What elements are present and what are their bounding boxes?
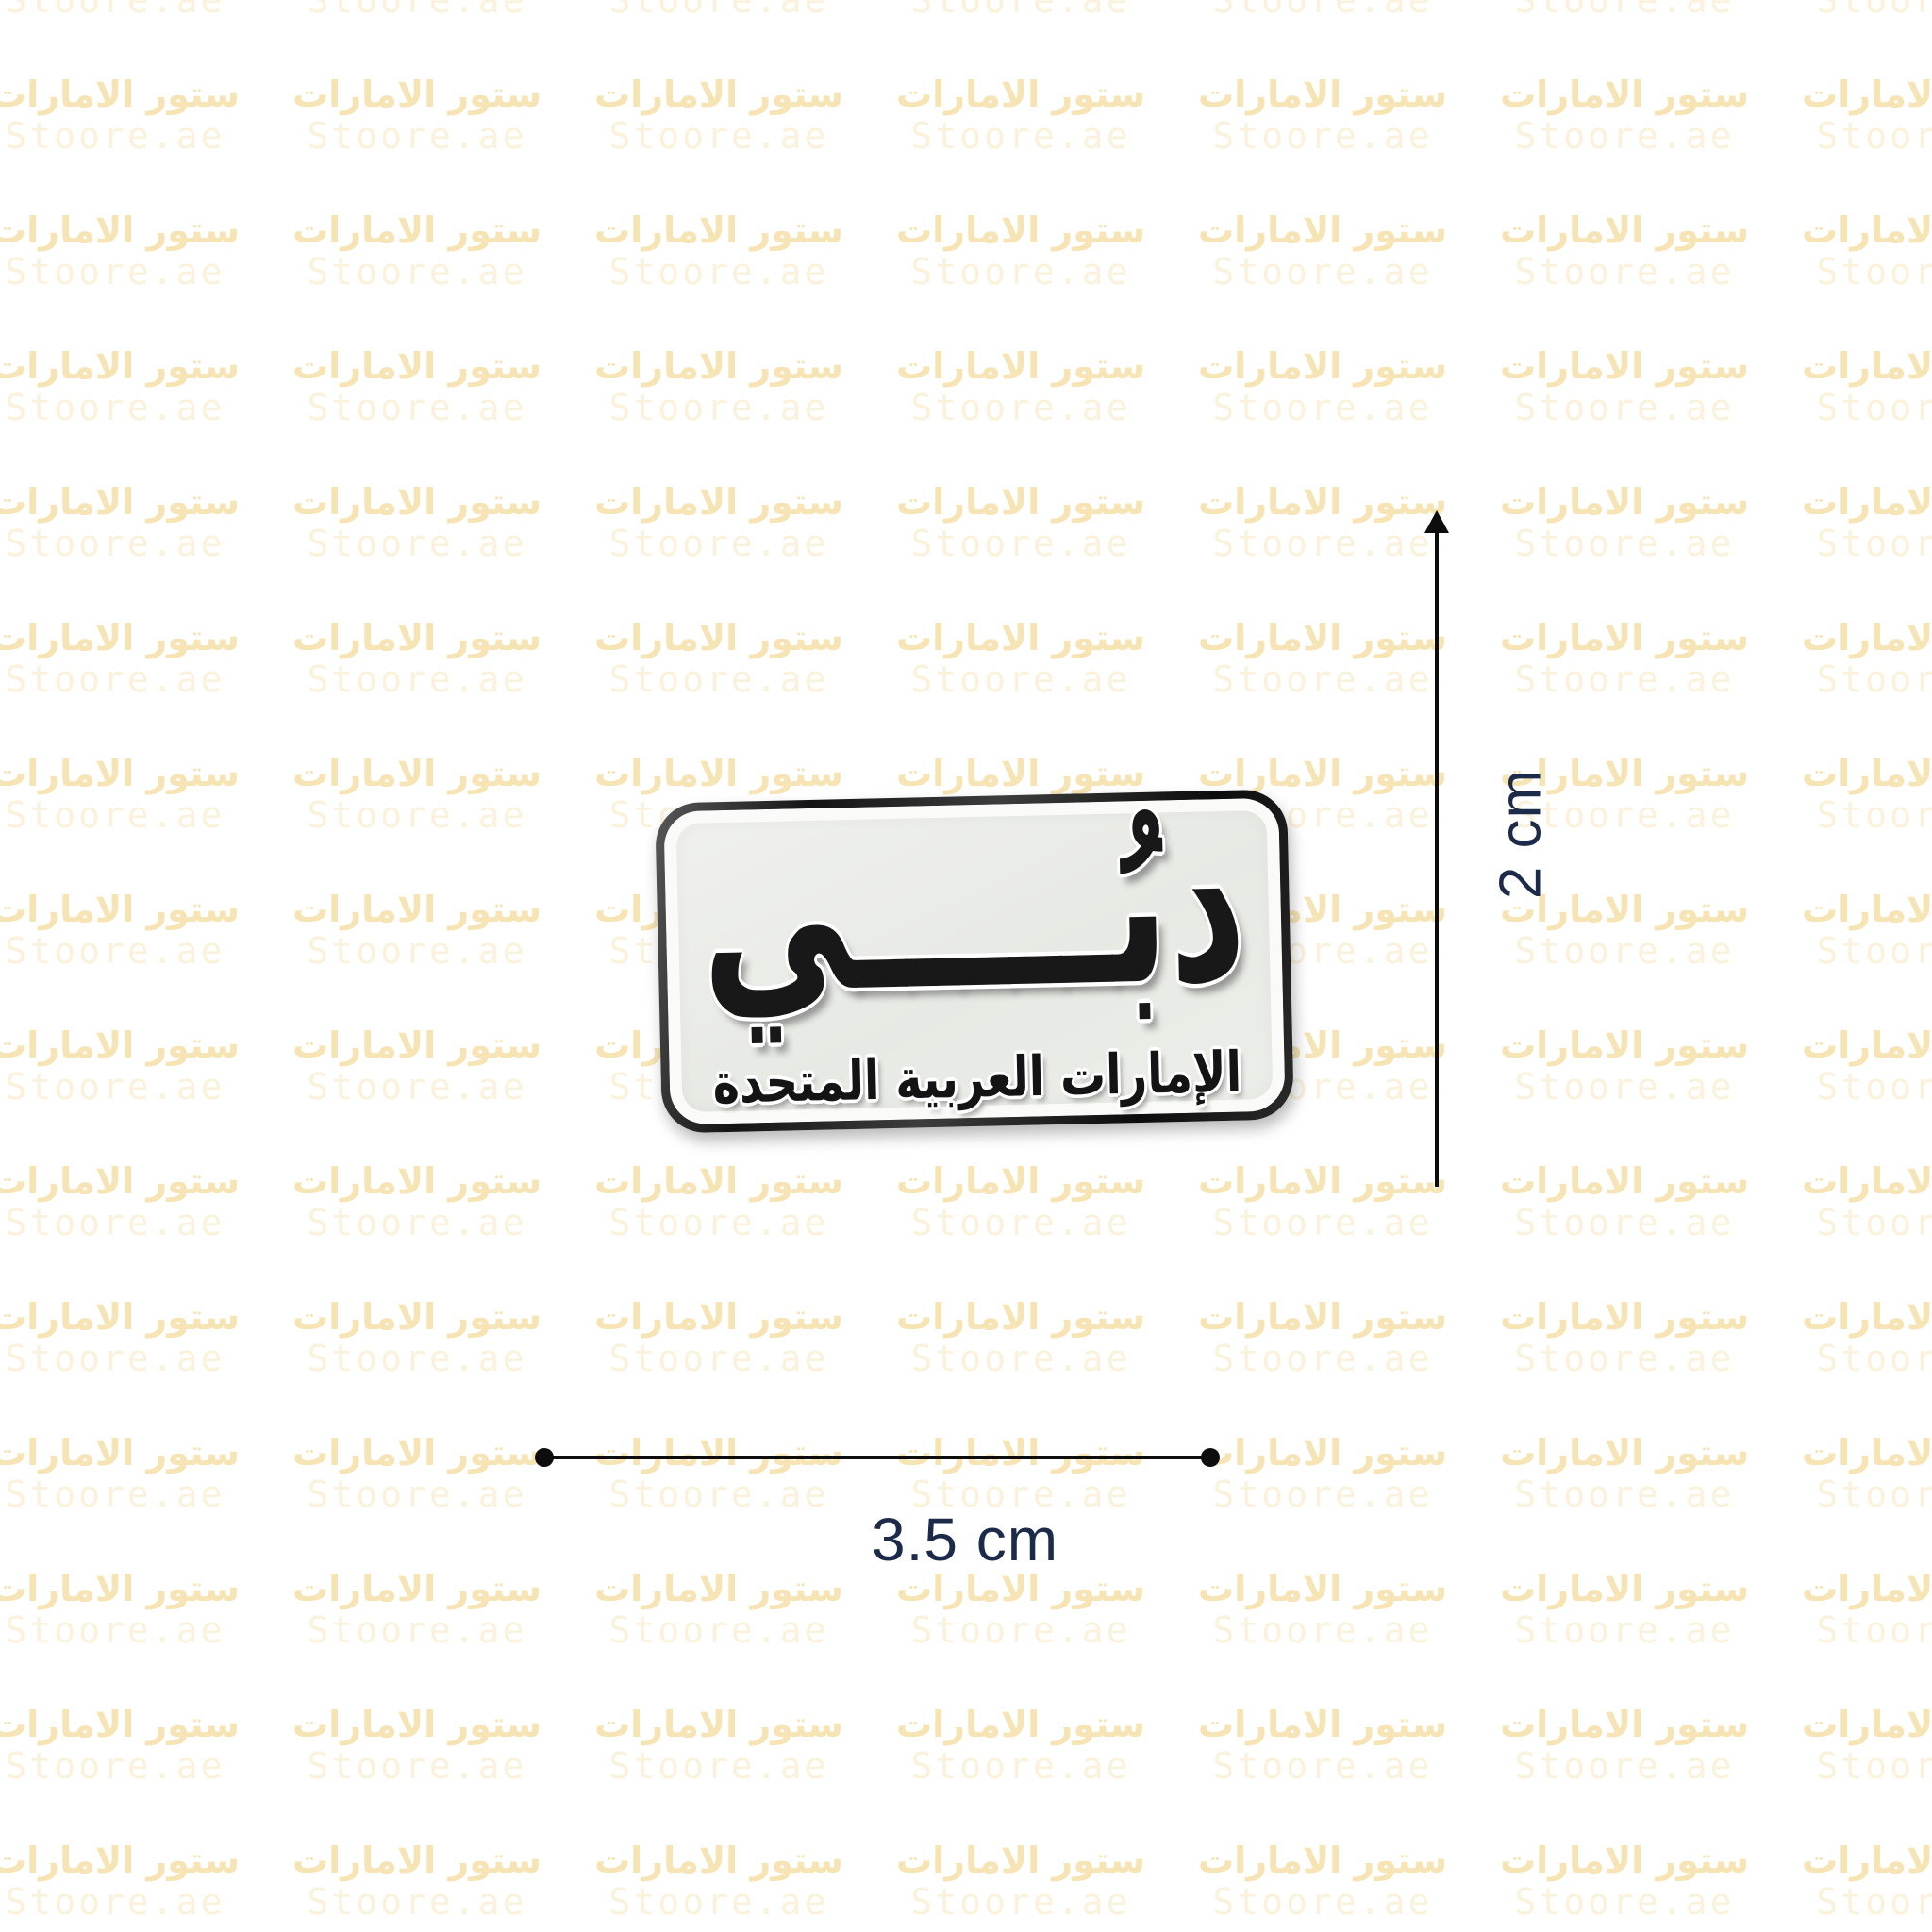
watermark-arabic-text: ستور الامارات: [292, 73, 541, 116]
watermark-item: ستور الاماراتStoore.ae: [1500, 73, 1749, 156]
watermark-arabic-text: ستور الامارات: [292, 208, 541, 252]
watermark-arabic-text: ستور الامارات: [594, 1295, 843, 1339]
watermark-arabic-text: ستور الامارات: [292, 1703, 541, 1746]
watermark-latin-text: Stoore.ae: [1500, 388, 1749, 427]
watermark-arabic-text: ستور الامارات: [1802, 1295, 1932, 1339]
watermark-arabic-text: ستور الامارات: [1500, 208, 1749, 252]
width-measure-right-dot-icon: [1201, 1448, 1220, 1467]
watermark-latin-text: Stoore.ae: [292, 116, 541, 156]
height-arrow-line: [1435, 528, 1439, 1187]
watermark-latin-text: Stoore.ae: [896, 0, 1145, 20]
watermark-latin-text: Stoore.ae: [0, 1067, 240, 1107]
watermark-item: ستور الاماراتStoore.ae: [1802, 1703, 1932, 1786]
watermark-latin-text: Stoore.ae: [896, 252, 1145, 291]
watermark-item: ستور الاماراتStoore.ae: [896, 1703, 1145, 1786]
watermark-arabic-text: ستور الامارات: [1500, 1839, 1749, 1882]
watermark-item: ستور الاماراتStoore.ae: [594, 616, 843, 699]
pin-face: دبُـــــي الإمارات العربية المتحدة: [663, 798, 1285, 1125]
watermark-arabic-text: ستور الامارات: [292, 1567, 541, 1610]
watermark-item: ستور الاماراتStoore.ae: [1802, 480, 1932, 563]
watermark-item: ستور الاماراتStoore.ae: [292, 1703, 541, 1786]
watermark-latin-text: Stoore.ae: [0, 1882, 240, 1922]
watermark-item: ستور الاماراتStoore.ae: [1198, 1431, 1447, 1514]
watermark-latin-text: Stoore.ae: [0, 1610, 240, 1650]
watermark-arabic-text: ستور الامارات: [1500, 1703, 1749, 1746]
watermark-item: ستور الاماراتStoore.ae: [1500, 1159, 1749, 1242]
watermark-latin-text: Stoore.ae: [594, 1610, 843, 1650]
product-image-canvas: ستور الاماراتStoore.aeستور الاماراتStoor…: [0, 0, 1932, 1932]
watermark-latin-text: Stoore.ae: [0, 1203, 240, 1242]
watermark-item: ستور الاماراتStoore.ae: [1500, 1024, 1749, 1107]
watermark-latin-text: Stoore.ae: [896, 524, 1145, 563]
watermark-latin-text: Stoore.ae: [1500, 252, 1749, 291]
pin-city-text: دبُـــــي: [698, 798, 1249, 1042]
watermark-arabic-text: ستور الامارات: [0, 752, 240, 795]
pin-country-text: الإمارات العربية المتحدة: [712, 1040, 1242, 1116]
watermark-latin-text: Stoore.ae: [1198, 1610, 1447, 1650]
watermark-item: ستور الاماراتStoore.ae: [0, 208, 240, 291]
watermark-arabic-text: ستور الامارات: [594, 1839, 843, 1882]
watermark-arabic-text: ستور الامارات: [594, 208, 843, 252]
watermark-item: ستور الاماراتStoore.ae: [896, 0, 1145, 20]
watermark-arabic-text: ستور الامارات: [594, 616, 843, 659]
watermark-latin-text: Stoore.ae: [1500, 1474, 1749, 1514]
watermark-latin-text: Stoore.ae: [1198, 1474, 1447, 1514]
watermark-arabic-text: ستور الامارات: [594, 1431, 843, 1474]
width-dimension-label: 3.5 cm: [872, 1505, 1058, 1574]
watermark-item: ستور الاماراتStoore.ae: [292, 208, 541, 291]
watermark-latin-text: Stoore.ae: [1802, 1474, 1932, 1514]
watermark-item: ستور الاماراتStoore.ae: [1500, 208, 1749, 291]
watermark-arabic-text: ستور الامارات: [1500, 1567, 1749, 1610]
watermark-item: ستور الاماراتStoore.ae: [1198, 1567, 1447, 1650]
watermark-latin-text: Stoore.ae: [1802, 1610, 1932, 1650]
watermark-arabic-text: ستور الامارات: [1500, 1295, 1749, 1339]
watermark-item: ستور الاماراتStoore.ae: [896, 1159, 1145, 1242]
watermark-latin-text: Stoore.ae: [1802, 1203, 1932, 1242]
watermark-item: ستور الاماراتStoore.ae: [292, 1024, 541, 1107]
watermark-arabic-text: ستور الامارات: [1198, 480, 1447, 524]
watermark-latin-text: Stoore.ae: [594, 1339, 843, 1378]
watermark-item: ستور الاماراتStoore.ae: [1198, 1159, 1447, 1242]
width-measure-left-dot-icon: [535, 1448, 554, 1467]
watermark-item: ستور الاماراتStoore.ae: [1802, 208, 1932, 291]
watermark-latin-text: Stoore.ae: [594, 524, 843, 563]
watermark-arabic-text: ستور الامارات: [0, 73, 240, 116]
watermark-item: ستور الاماراتStoore.ae: [1198, 1839, 1447, 1922]
watermark-latin-text: Stoore.ae: [1500, 1746, 1749, 1786]
watermark-arabic-text: ستور الامارات: [594, 752, 843, 795]
watermark-item: ستور الاماراتStoore.ae: [0, 1024, 240, 1107]
watermark-latin-text: Stoore.ae: [0, 1339, 240, 1378]
watermark-item: ستور الاماراتStoore.ae: [1802, 616, 1932, 699]
watermark-latin-text: Stoore.ae: [594, 1203, 843, 1242]
watermark-item: ستور الاماراتStoore.ae: [896, 480, 1145, 563]
watermark-latin-text: Stoore.ae: [594, 116, 843, 156]
watermark-latin-text: Stoore.ae: [1198, 0, 1447, 20]
watermark-arabic-text: ستور الامارات: [896, 73, 1145, 116]
watermark-arabic-text: ستور الامارات: [0, 1159, 240, 1203]
watermark-item: ستور الاماراتStoore.ae: [1802, 1839, 1932, 1922]
watermark-latin-text: Stoore.ae: [1500, 0, 1749, 20]
watermark-latin-text: Stoore.ae: [292, 1203, 541, 1242]
watermark-item: ستور الاماراتStoore.ae: [896, 1295, 1145, 1378]
watermark-arabic-text: ستور الامارات: [1802, 1431, 1932, 1474]
watermark-latin-text: Stoore.ae: [896, 1610, 1145, 1650]
pin-city-text-wrap: دبُـــــي: [663, 804, 1283, 1014]
watermark-latin-text: Stoore.ae: [1802, 795, 1932, 835]
watermark-arabic-text: ستور الامارات: [0, 1024, 240, 1067]
watermark-arabic-text: ستور الامارات: [594, 73, 843, 116]
watermark-item: ستور الاماراتStoore.ae: [896, 616, 1145, 699]
watermark-latin-text: Stoore.ae: [1500, 1882, 1749, 1922]
watermark-item: ستور الاماراتStoore.ae: [1500, 1431, 1749, 1514]
watermark-arabic-text: ستور الامارات: [1802, 1024, 1932, 1067]
watermark-latin-text: Stoore.ae: [1198, 1203, 1447, 1242]
watermark-latin-text: Stoore.ae: [1500, 931, 1749, 971]
watermark-item: ستور الاماراتStoore.ae: [0, 888, 240, 971]
watermark-item: ستور الاماراتStoore.ae: [0, 1431, 240, 1514]
watermark-arabic-text: ستور الامارات: [594, 1159, 843, 1203]
watermark-arabic-text: ستور الامارات: [1198, 752, 1447, 795]
watermark-item: ستور الاماراتStoore.ae: [594, 0, 843, 20]
watermark-item: ستور الاماراتStoore.ae: [0, 0, 240, 20]
watermark-latin-text: Stoore.ae: [594, 388, 843, 427]
watermark-arabic-text: ستور الامارات: [1500, 616, 1749, 659]
watermark-item: ستور الاماراتStoore.ae: [896, 1431, 1145, 1514]
watermark-item: ستور الاماراتStoore.ae: [1802, 1024, 1932, 1107]
watermark-arabic-text: ستور الامارات: [1500, 73, 1749, 116]
watermark-latin-text: Stoore.ae: [0, 252, 240, 291]
watermark-item: ستور الاماراتStoore.ae: [0, 1703, 240, 1786]
watermark-item: ستور الاماراتStoore.ae: [292, 344, 541, 427]
watermark-item: ستور الاماراتStoore.ae: [292, 1839, 541, 1922]
watermark-item: ستور الاماراتStoore.ae: [0, 1159, 240, 1242]
watermark-arabic-text: ستور الامارات: [0, 344, 240, 388]
watermark-arabic-text: ستور الامارات: [594, 1703, 843, 1746]
watermark-latin-text: Stoore.ae: [1500, 1339, 1749, 1378]
watermark-latin-text: Stoore.ae: [594, 1474, 843, 1514]
watermark-latin-text: Stoore.ae: [896, 116, 1145, 156]
watermark-latin-text: Stoore.ae: [1500, 116, 1749, 156]
watermark-arabic-text: ستور الامارات: [1198, 1431, 1447, 1474]
watermark-item: ستور الاماراتStoore.ae: [1802, 888, 1932, 971]
watermark-latin-text: Stoore.ae: [594, 1882, 843, 1922]
watermark-item: ستور الاماراتStoore.ae: [0, 344, 240, 427]
watermark-latin-text: Stoore.ae: [292, 795, 541, 835]
watermark-latin-text: Stoore.ae: [1802, 1067, 1932, 1107]
watermark-item: ستور الاماراتStoore.ae: [1198, 616, 1447, 699]
watermark-item: ستور الاماراتStoore.ae: [896, 1839, 1145, 1922]
watermark-latin-text: Stoore.ae: [1802, 116, 1932, 156]
watermark-arabic-text: ستور الامارات: [1802, 616, 1932, 659]
watermark-arabic-text: ستور الامارات: [1198, 73, 1447, 116]
watermark-item: ستور الاماراتStoore.ae: [0, 1839, 240, 1922]
watermark-item: ستور الاماراتStoore.ae: [594, 208, 843, 291]
watermark-item: ستور الاماراتStoore.ae: [1802, 344, 1932, 427]
watermark-item: ستور الاماراتStoore.ae: [0, 752, 240, 835]
watermark-latin-text: Stoore.ae: [1198, 1746, 1447, 1786]
watermark-arabic-text: ستور الامارات: [594, 1567, 843, 1610]
watermark-latin-text: Stoore.ae: [292, 1474, 541, 1514]
watermark-latin-text: Stoore.ae: [896, 1882, 1145, 1922]
watermark-arabic-text: ستور الامارات: [292, 1159, 541, 1203]
watermark-latin-text: Stoore.ae: [1802, 524, 1932, 563]
watermark-arabic-text: ستور الامارات: [0, 1703, 240, 1746]
watermark-item: ستور الاماراتStoore.ae: [1802, 1431, 1932, 1514]
watermark-arabic-text: ستور الامارات: [1198, 1295, 1447, 1339]
watermark-item: ستور الاماراتStoore.ae: [594, 1295, 843, 1378]
watermark-arabic-text: ستور الامارات: [896, 480, 1145, 524]
watermark-item: ستور الاماراتStoore.ae: [0, 1567, 240, 1650]
watermark-latin-text: Stoore.ae: [292, 1339, 541, 1378]
watermark-latin-text: Stoore.ae: [896, 1339, 1145, 1378]
watermark-latin-text: Stoore.ae: [896, 388, 1145, 427]
watermark-arabic-text: ستور الامارات: [0, 480, 240, 524]
watermark-latin-text: Stoore.ae: [292, 1067, 541, 1107]
watermark-item: ستور الاماراتStoore.ae: [594, 73, 843, 156]
watermark-latin-text: Stoore.ae: [0, 1746, 240, 1786]
watermark-arabic-text: ستور الامارات: [1198, 1839, 1447, 1882]
watermark-item: ستور الاماراتStoore.ae: [1500, 616, 1749, 699]
watermark-arabic-text: ستور الامارات: [1198, 208, 1447, 252]
watermark-arabic-text: ستور الامارات: [292, 1431, 541, 1474]
watermark-arabic-text: ستور الامارات: [1802, 1159, 1932, 1203]
watermark-latin-text: Stoore.ae: [1802, 659, 1932, 699]
watermark-arabic-text: ستور الامارات: [896, 1839, 1145, 1882]
watermark-latin-text: Stoore.ae: [1198, 252, 1447, 291]
watermark-item: ستور الاماراتStoore.ae: [292, 888, 541, 971]
watermark-latin-text: Stoore.ae: [0, 388, 240, 427]
watermark-item: ستور الاماراتStoore.ae: [594, 480, 843, 563]
watermark-item: ستور الاماراتStoore.ae: [1500, 1567, 1749, 1650]
watermark-item: ستور الاماراتStoore.ae: [1500, 480, 1749, 563]
watermark-item: ستور الاماراتStoore.ae: [1500, 0, 1749, 20]
watermark-arabic-text: ستور الامارات: [0, 1567, 240, 1610]
watermark-arabic-text: ستور الامارات: [1500, 1024, 1749, 1067]
watermark-arabic-text: ستور الامارات: [896, 1295, 1145, 1339]
watermark-latin-text: Stoore.ae: [1802, 252, 1932, 291]
watermark-latin-text: Stoore.ae: [0, 0, 240, 20]
watermark-arabic-text: ستور الامارات: [1198, 616, 1447, 659]
watermark-item: ستور الاماراتStoore.ae: [0, 73, 240, 156]
watermark-arabic-text: ستور الامارات: [0, 888, 240, 931]
watermark-item: ستور الاماراتStoore.ae: [292, 1431, 541, 1514]
watermark-latin-text: Stoore.ae: [0, 524, 240, 563]
watermark-latin-text: Stoore.ae: [1802, 931, 1932, 971]
watermark-arabic-text: ستور الامارات: [292, 616, 541, 659]
watermark-latin-text: Stoore.ae: [1198, 524, 1447, 563]
watermark-arabic-text: ستور الامارات: [0, 208, 240, 252]
watermark-latin-text: Stoore.ae: [1198, 659, 1447, 699]
watermark-item: ستور الاماراتStoore.ae: [896, 344, 1145, 427]
watermark-arabic-text: ستور الامارات: [896, 1431, 1145, 1474]
watermark-arabic-text: ستور الامارات: [0, 1295, 240, 1339]
watermark-item: ستور الاماراتStoore.ae: [1500, 1703, 1749, 1786]
watermark-item: ستور الاماراتStoore.ae: [0, 480, 240, 563]
watermark-latin-text: Stoore.ae: [594, 252, 843, 291]
watermark-item: ستور الاماراتStoore.ae: [594, 1159, 843, 1242]
watermark-item: ستور الاماراتStoore.ae: [1802, 1295, 1932, 1378]
watermark-arabic-text: ستور الامارات: [292, 1839, 541, 1882]
watermark-item: ستور الاماراتStoore.ae: [0, 1295, 240, 1378]
watermark-item: ستور الاماراتStoore.ae: [594, 1839, 843, 1922]
watermark-arabic-text: ستور الامارات: [1802, 1567, 1932, 1610]
watermark-latin-text: Stoore.ae: [292, 659, 541, 699]
height-dimension-label: 2 cm: [1488, 769, 1555, 899]
watermark-item: ستور الاماراتStoore.ae: [896, 208, 1145, 291]
watermark-arabic-text: ستور الامارات: [896, 616, 1145, 659]
watermark-latin-text: Stoore.ae: [292, 1610, 541, 1650]
watermark-latin-text: Stoore.ae: [0, 659, 240, 699]
watermark-latin-text: Stoore.ae: [1802, 388, 1932, 427]
watermark-arabic-text: ستور الامارات: [1802, 752, 1932, 795]
watermark-item: ستور الاماراتStoore.ae: [292, 1295, 541, 1378]
watermark-item: ستور الاماراتStoore.ae: [1500, 1839, 1749, 1922]
pin-country-text-wrap: الإمارات العربية المتحدة: [669, 1045, 1285, 1112]
watermark-arabic-text: ستور الامارات: [0, 1431, 240, 1474]
watermark-item: ستور الاماراتStoore.ae: [594, 344, 843, 427]
dubai-plate-pin: دبُـــــي الإمارات العربية المتحدة: [655, 789, 1294, 1133]
watermark-latin-text: Stoore.ae: [0, 116, 240, 156]
watermark-latin-text: Stoore.ae: [0, 795, 240, 835]
width-measure-line: [543, 1456, 1210, 1459]
watermark-arabic-text: ستور الامارات: [1802, 480, 1932, 524]
watermark-latin-text: Stoore.ae: [292, 252, 541, 291]
watermark-arabic-text: ستور الامارات: [896, 752, 1145, 795]
watermark-item: ستور الاماراتStoore.ae: [896, 1567, 1145, 1650]
watermark-item: ستور الاماراتStoore.ae: [594, 1431, 843, 1514]
watermark-arabic-text: ستور الامارات: [1500, 1431, 1749, 1474]
watermark-arabic-text: ستور الامارات: [292, 752, 541, 795]
watermark-latin-text: Stoore.ae: [594, 0, 843, 20]
watermark-latin-text: Stoore.ae: [896, 1746, 1145, 1786]
watermark-item: ستور الاماراتStoore.ae: [594, 1703, 843, 1786]
watermark-item: ستور الاماراتStoore.ae: [1802, 1567, 1932, 1650]
watermark-latin-text: Stoore.ae: [292, 1746, 541, 1786]
watermark-item: ستور الاماراتStoore.ae: [1500, 888, 1749, 971]
watermark-item: ستور الاماراتStoore.ae: [1500, 344, 1749, 427]
watermark-arabic-text: ستور الامارات: [1500, 1159, 1749, 1203]
watermark-latin-text: Stoore.ae: [1500, 1610, 1749, 1650]
watermark-latin-text: Stoore.ae: [1198, 116, 1447, 156]
watermark-arabic-text: ستور الامارات: [594, 344, 843, 388]
watermark-item: ستور الاماراتStoore.ae: [1802, 752, 1932, 835]
watermark-item: ستور الاماراتStoore.ae: [292, 73, 541, 156]
watermark-latin-text: Stoore.ae: [594, 1746, 843, 1786]
watermark-item: ستور الاماراتStoore.ae: [1198, 73, 1447, 156]
watermark-arabic-text: ستور الامارات: [292, 480, 541, 524]
watermark-item: ستور الاماراتStoore.ae: [0, 616, 240, 699]
watermark-item: ستور الاماراتStoore.ae: [1802, 0, 1932, 20]
watermark-item: ستور الاماراتStoore.ae: [1198, 344, 1447, 427]
watermark-latin-text: Stoore.ae: [1198, 388, 1447, 427]
watermark-latin-text: Stoore.ae: [1802, 1339, 1932, 1378]
watermark-item: ستور الاماراتStoore.ae: [1802, 73, 1932, 156]
watermark-latin-text: Stoore.ae: [0, 931, 240, 971]
watermark-item: ستور الاماراتStoore.ae: [292, 616, 541, 699]
watermark-arabic-text: ستور الامارات: [0, 616, 240, 659]
watermark-latin-text: Stoore.ae: [292, 388, 541, 427]
watermark-latin-text: Stoore.ae: [1500, 524, 1749, 563]
watermark-item: ستور الاماراتStoore.ae: [1198, 1295, 1447, 1378]
watermark-latin-text: Stoore.ae: [1802, 1746, 1932, 1786]
watermark-arabic-text: ستور الامارات: [1198, 1703, 1447, 1746]
watermark-arabic-text: ستور الامارات: [896, 1159, 1145, 1203]
watermark-arabic-text: ستور الامارات: [896, 1703, 1145, 1746]
watermark-arabic-text: ستور الامارات: [292, 344, 541, 388]
watermark-item: ستور الاماراتStoore.ae: [1500, 1295, 1749, 1378]
watermark-latin-text: Stoore.ae: [292, 0, 541, 20]
watermark-arabic-text: ستور الامارات: [1802, 344, 1932, 388]
watermark-arabic-text: ستور الامارات: [1198, 344, 1447, 388]
watermark-item: ستور الاماراتStoore.ae: [292, 1567, 541, 1650]
watermark-latin-text: Stoore.ae: [1500, 659, 1749, 699]
watermark-item: ستور الاماراتStoore.ae: [1198, 480, 1447, 563]
watermark-latin-text: Stoore.ae: [0, 1474, 240, 1514]
watermark-arabic-text: ستور الامارات: [896, 208, 1145, 252]
watermark-arabic-text: ستور الامارات: [1500, 480, 1749, 524]
watermark-latin-text: Stoore.ae: [292, 1882, 541, 1922]
watermark-latin-text: Stoore.ae: [1198, 1339, 1447, 1378]
watermark-arabic-text: ستور الامارات: [1802, 73, 1932, 116]
watermark-latin-text: Stoore.ae: [896, 1203, 1145, 1242]
watermark-item: ستور الاماراتStoore.ae: [594, 1567, 843, 1650]
watermark-arabic-text: ستور الامارات: [1198, 1567, 1447, 1610]
watermark-arabic-text: ستور الامارات: [1802, 888, 1932, 931]
watermark-latin-text: Stoore.ae: [292, 931, 541, 971]
watermark-item: ستور الاماراتStoore.ae: [1198, 0, 1447, 20]
watermark-arabic-text: ستور الامارات: [0, 1839, 240, 1882]
watermark-latin-text: Stoore.ae: [1500, 1203, 1749, 1242]
watermark-latin-text: Stoore.ae: [1802, 0, 1932, 20]
watermark-latin-text: Stoore.ae: [896, 659, 1145, 699]
watermark-arabic-text: ستور الامارات: [292, 888, 541, 931]
watermark-latin-text: Stoore.ae: [594, 659, 843, 699]
watermark-arabic-text: ستور الامارات: [1802, 1839, 1932, 1882]
watermark-latin-text: Stoore.ae: [292, 524, 541, 563]
watermark-arabic-text: ستور الامارات: [1198, 1159, 1447, 1203]
watermark-item: ستور الاماراتStoore.ae: [292, 480, 541, 563]
watermark-item: ستور الاماراتStoore.ae: [1198, 208, 1447, 291]
watermark-arabic-text: ستور الامارات: [594, 480, 843, 524]
watermark-item: ستور الاماراتStoore.ae: [896, 73, 1145, 156]
watermark-item: ستور الاماراتStoore.ae: [292, 0, 541, 20]
watermark-item: ستور الاماراتStoore.ae: [292, 752, 541, 835]
watermark-latin-text: Stoore.ae: [1198, 1882, 1447, 1922]
watermark-item: ستور الاماراتStoore.ae: [1198, 1703, 1447, 1786]
watermark-arabic-text: ستور الامارات: [896, 344, 1145, 388]
watermark-latin-text: Stoore.ae: [1500, 1067, 1749, 1107]
watermark-arabic-text: ستور الامارات: [1500, 344, 1749, 388]
watermark-item: ستور الاماراتStoore.ae: [292, 1159, 541, 1242]
watermark-arabic-text: ستور الامارات: [292, 1024, 541, 1067]
watermark-arabic-text: ستور الامارات: [1802, 208, 1932, 252]
watermark-item: ستور الاماراتStoore.ae: [1802, 1159, 1932, 1242]
watermark-latin-text: Stoore.ae: [1802, 1882, 1932, 1922]
watermark-arabic-text: ستور الامارات: [292, 1295, 541, 1339]
watermark-arabic-text: ستور الامارات: [1802, 1703, 1932, 1746]
